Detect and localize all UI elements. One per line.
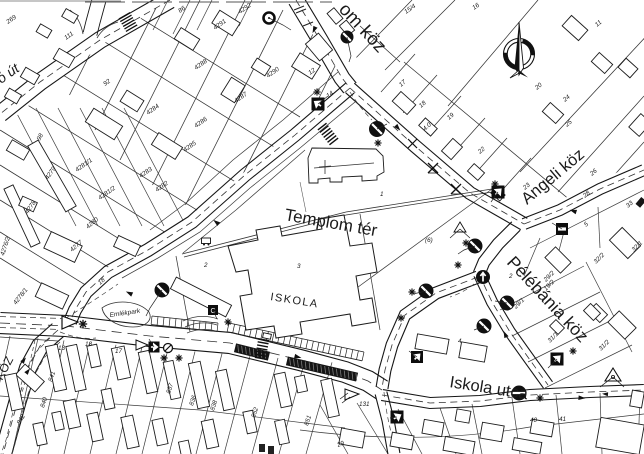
svg-text:2: 2	[508, 273, 513, 280]
svg-text:17: 17	[115, 348, 123, 355]
svg-text:18: 18	[85, 341, 93, 348]
svg-text:1: 1	[380, 191, 384, 198]
svg-text:3: 3	[297, 263, 301, 270]
svg-text:40: 40	[530, 417, 538, 424]
svg-text:13: 13	[58, 345, 66, 352]
svg-text:(6): (6)	[425, 237, 433, 244]
svg-text:131: 131	[359, 401, 370, 408]
svg-text:2: 2	[203, 262, 208, 269]
svg-text:4: 4	[458, 338, 462, 345]
svg-text:41: 41	[559, 416, 566, 423]
